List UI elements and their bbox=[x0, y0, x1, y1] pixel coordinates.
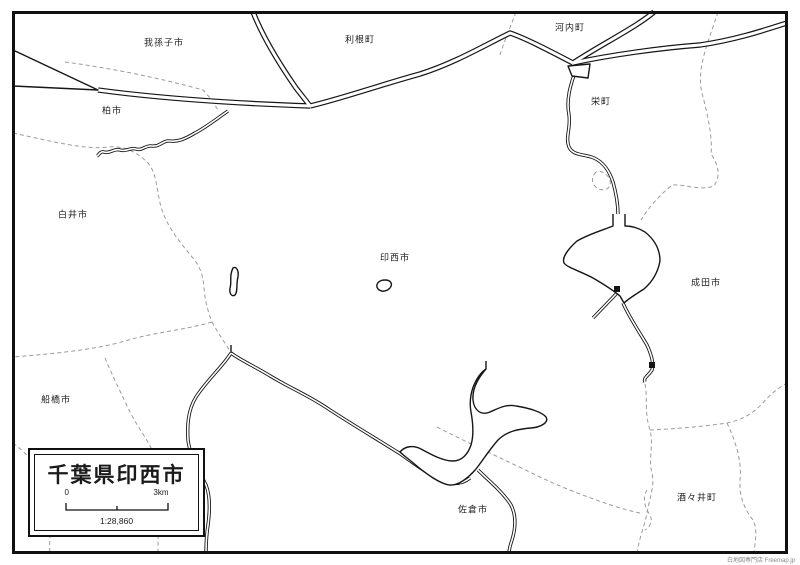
boundary-southeast-horizontal bbox=[650, 383, 787, 430]
scale-zero-label: 0 bbox=[65, 489, 69, 497]
channel-marker-square bbox=[649, 362, 655, 368]
boundary-west bbox=[13, 322, 212, 357]
map-label-narita-shi: 成田市 bbox=[691, 279, 721, 288]
map-label-shiroi-shi: 白井市 bbox=[58, 211, 88, 220]
river-wedge-west-edge bbox=[13, 50, 98, 90]
map-credit: 白地図専門店 Freemap.jp bbox=[727, 555, 795, 564]
title-legend-inner-border: 千葉県印西市 0 3km 1:28,860 bbox=[34, 454, 199, 531]
scale-bar: 0 3km 1:28,860 bbox=[65, 489, 169, 526]
map-label-kawachi-machi: 河内町 bbox=[555, 24, 585, 33]
title-legend-box: 千葉県印西市 0 3km 1:28,860 bbox=[28, 448, 205, 537]
map-label-kashiwa-shi: 柏市 bbox=[102, 107, 122, 116]
scale-bar-graphic bbox=[65, 503, 169, 511]
canal-marker-square bbox=[614, 286, 620, 292]
scale-ratio: 1:28,860 bbox=[65, 517, 169, 526]
map-label-inzai-shi: 印西市 bbox=[380, 254, 410, 263]
map-label-sakae-machi: 栄町 bbox=[591, 98, 611, 107]
boundary-to-river bbox=[212, 322, 230, 351]
map-label-shisui-machi: 酒々井町 bbox=[677, 494, 717, 503]
boundary-nagato-blob bbox=[592, 171, 610, 189]
lake-nishi-inbanuma bbox=[400, 369, 547, 485]
lake-kita-inbanuma bbox=[564, 214, 660, 303]
blank-map-page: 我孫子市 利根町 河内町 柏市 栄町 白井市 印西市 成田市 船橋市 佐倉市 酒… bbox=[0, 0, 800, 565]
lakes-group bbox=[230, 214, 660, 485]
map-title: 千葉県印西市 bbox=[48, 465, 186, 486]
map-label-sakura-shi: 佐倉市 bbox=[458, 506, 488, 515]
map-label-abiko-shi: 我孫子市 bbox=[144, 39, 184, 48]
map-label-tone-machi: 利根町 bbox=[345, 36, 375, 45]
scale-max-label: 3km bbox=[153, 489, 168, 497]
boundary-northwest-long bbox=[13, 133, 212, 322]
river-junction-island bbox=[568, 64, 590, 78]
pond-blob bbox=[377, 280, 392, 291]
boundary-southeast-vertical bbox=[637, 384, 653, 553]
boundary-southeast-lower bbox=[727, 423, 756, 553]
map-label-funabashi-shi: 船橋市 bbox=[41, 396, 71, 405]
pond-sliver bbox=[230, 267, 238, 295]
